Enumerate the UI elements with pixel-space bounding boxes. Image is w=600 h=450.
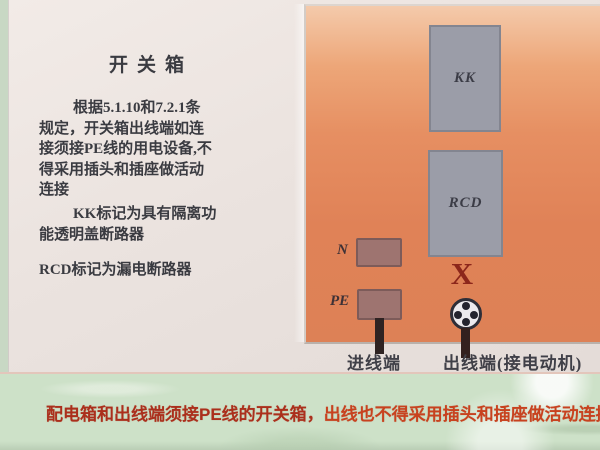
paragraph-line: 得采用插头和插座做活动 bbox=[39, 160, 212, 181]
paragraph-line: 接须接PE线的用电设备,不 bbox=[39, 139, 212, 160]
rcd-breaker-label: RCD bbox=[449, 195, 483, 212]
pe-terminal-label: PE bbox=[330, 293, 349, 310]
socket-pin-dot bbox=[454, 311, 462, 319]
kk-breaker-box: KK bbox=[429, 25, 501, 132]
paragraph-line: 规定，开关箱出线端如连 bbox=[39, 119, 212, 140]
socket-pin-dot bbox=[462, 318, 470, 326]
paragraph-line: 连接 bbox=[39, 180, 212, 201]
footer-caption-part2: 出线也不得采用插头和插座做活动连接。 bbox=[324, 405, 600, 424]
slide-photo: 开关箱 根据5.1.10和7.2.1条 规定，开关箱出线端如连 接须接PE线的用… bbox=[0, 0, 600, 450]
footer-banner: 配电箱和出线端须接PE线的开关箱，出线也不得采用插头和插座做活动连接。 bbox=[0, 372, 600, 450]
kk-note-paragraph: KK标记为具有隔离功 能透明盖断路器 bbox=[39, 204, 216, 245]
socket-pin-dot bbox=[470, 311, 478, 319]
pe-terminal-box bbox=[357, 289, 402, 320]
n-terminal-label: N bbox=[337, 242, 348, 259]
socket-icon bbox=[450, 298, 482, 330]
paragraph-line: RCD标记为漏电断路器 bbox=[39, 260, 192, 281]
paragraph-line: 根据5.1.10和7.2.1条 bbox=[39, 98, 212, 119]
switch-box-diagram: KK RCD N PE X bbox=[304, 4, 600, 344]
rcd-breaker-box: RCD bbox=[428, 150, 503, 257]
paragraph-line: KK标记为具有隔离功 bbox=[39, 204, 216, 225]
slide-page: 开关箱 根据5.1.10和7.2.1条 规定，开关箱出线端如连 接须接PE线的用… bbox=[8, 0, 600, 372]
socket-pin-dot bbox=[462, 302, 470, 310]
rcd-note-paragraph: RCD标记为漏电断路器 bbox=[39, 260, 192, 281]
footer-caption: 配电箱和出线端须接PE线的开关箱，出线也不得采用插头和插座做活动连接。 bbox=[46, 400, 586, 425]
regulation-paragraph: 根据5.1.10和7.2.1条 规定，开关箱出线端如连 接须接PE线的用电设备,… bbox=[39, 98, 212, 201]
n-terminal-box bbox=[356, 238, 402, 267]
kk-breaker-label: KK bbox=[454, 70, 476, 87]
footer-caption-part1: 配电箱和出线端须接PE线的开关箱， bbox=[46, 405, 324, 424]
incoming-terminal-label: 进线端 bbox=[347, 349, 401, 374]
slide-title: 开关箱 bbox=[61, 50, 241, 77]
prohibited-x-icon: X bbox=[446, 258, 478, 290]
paragraph-line: 能透明盖断路器 bbox=[39, 225, 216, 246]
outgoing-terminal-label: 出线端(接电动机) bbox=[443, 349, 582, 374]
